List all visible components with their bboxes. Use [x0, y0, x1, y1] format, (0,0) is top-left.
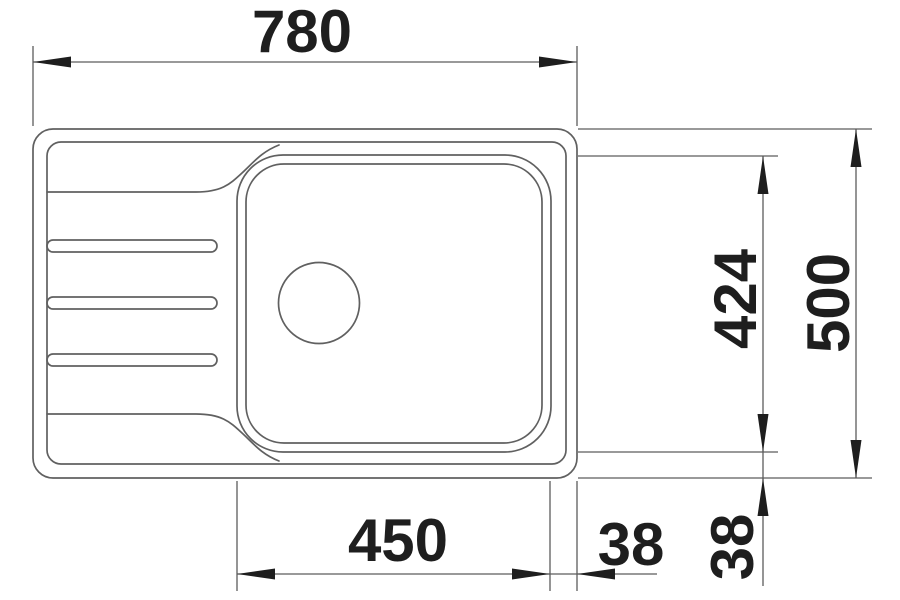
dimension-value-bowl-inner-depth: 424 [702, 248, 769, 349]
drainboard-groove-3 [47, 354, 217, 366]
arrowhead-bottom [851, 440, 862, 478]
arrowhead-left [33, 57, 71, 68]
sink-rim [47, 142, 566, 464]
dimension-bowl-right-offset: 38 [550, 481, 664, 591]
drainboard-lower-contour [47, 414, 279, 461]
arrowhead-bottom [758, 414, 769, 452]
arrowhead-up [758, 478, 769, 516]
arrowhead-top [851, 129, 862, 167]
drainboard-upper-contour [47, 145, 279, 192]
arrowhead-top [758, 156, 769, 194]
dimension-value-bowl-width: 450 [348, 507, 448, 574]
sink-dimension-drawing: 780 500 424 450 [0, 0, 900, 600]
dimension-value-bowl-right-offset: 38 [598, 511, 665, 578]
bowl-inner-edge [246, 164, 542, 443]
arrowhead-left [237, 569, 275, 580]
technical-drawing-canvas: 780 500 424 450 [0, 0, 900, 600]
dimension-bowl-bottom-offset: 38 [699, 452, 769, 586]
dimension-value-bowl-bottom-offset: 38 [699, 514, 766, 581]
drainboard-groove-2 [47, 297, 217, 309]
drain-hole [279, 263, 360, 344]
sink-plan-view [33, 129, 577, 478]
drainboard-groove-1 [47, 240, 217, 252]
dimension-bowl-inner-depth: 424 [578, 156, 778, 452]
arrowhead-right [512, 569, 550, 580]
bowl-outer-edge [237, 155, 551, 452]
dimension-bowl-width: 450 [237, 481, 550, 591]
arrowhead-right [539, 57, 577, 68]
dimension-value-overall-width: 780 [252, 0, 352, 65]
sink-outer-edge [33, 129, 577, 478]
dimension-value-overall-depth: 500 [795, 253, 862, 353]
dimension-overall-width: 780 [33, 0, 577, 126]
